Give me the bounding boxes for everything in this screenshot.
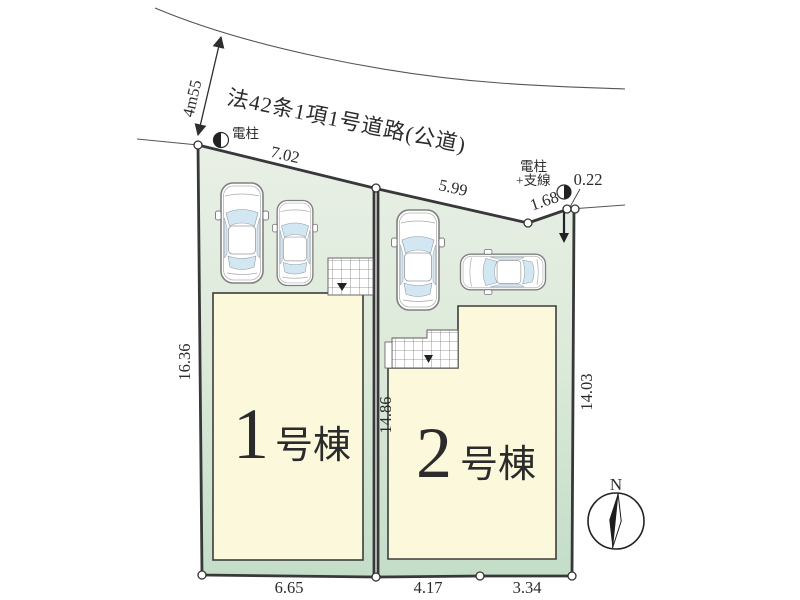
site-plan-canvas: 法42条1項1号道路(公道) 4m55 1号棟 2号棟 [0, 0, 800, 600]
pole-west-label: 電柱 [232, 126, 259, 141]
car-lot1-left [216, 183, 269, 283]
dim-west-side: 16.36 [175, 343, 194, 380]
compass: N [588, 475, 644, 549]
road-lower-edge-west [137, 139, 198, 145]
road-upper-edge [155, 8, 625, 89]
pole-east-label-line1: 電柱 [520, 159, 547, 174]
road-width-label: 4m55 [178, 78, 205, 119]
dim-frontage-3: 1.68 [527, 187, 560, 214]
building-2-suffix: 号棟 [460, 444, 536, 486]
porch-side-step [385, 342, 392, 368]
site-plan-svg: 法42条1項1号道路(公道) 4m55 1号棟 2号棟 [0, 0, 800, 600]
dim-east-side: 14.03 [577, 373, 596, 410]
road-lower-edge-east [577, 205, 625, 209]
pole-east-label-line2: +支線 [516, 173, 551, 188]
dim-corner-offset: 0.22 [574, 170, 603, 189]
building-2-number: 2 [416, 413, 452, 493]
dim-south-lot2-a: 4.17 [414, 578, 443, 597]
porch-steps-building-1 [328, 258, 373, 295]
dim-center-boundary: 14.86 [376, 396, 395, 433]
car-lot2-left [392, 210, 445, 310]
building-1-suffix: 号棟 [275, 425, 351, 467]
dim-south-lot2-b: 3.34 [513, 578, 542, 597]
pole-west: 電柱 [214, 126, 260, 148]
dim-frontage-2: 5.99 [437, 175, 469, 200]
road-name-label: 法42条1項1号道路(公道) [225, 85, 468, 157]
compass-north-label: N [610, 475, 622, 494]
car-lot2-right [461, 249, 546, 294]
building-1-number: 1 [233, 394, 269, 474]
dim-south-lot1: 6.65 [275, 578, 304, 597]
car-lot1-right [272, 201, 317, 286]
